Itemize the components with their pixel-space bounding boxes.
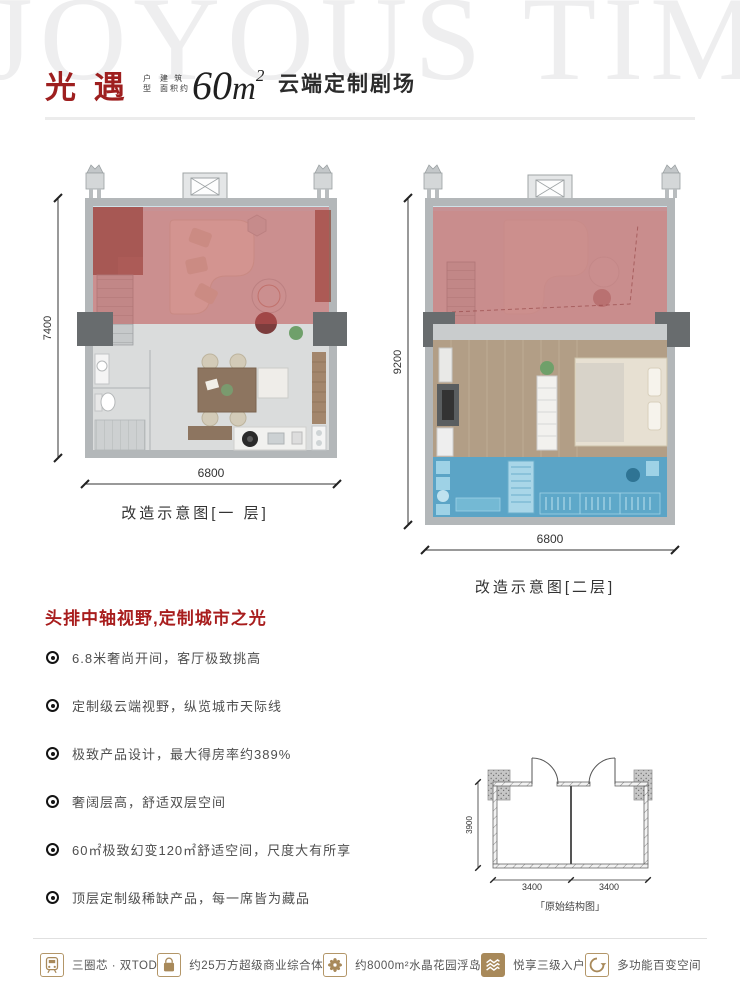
plan2-caption: 改造示意图[二层] [390,576,700,597]
svg-text:9200: 9200 [392,350,404,374]
features-heading: 头排中轴视野,定制城市之光 [45,604,267,629]
footer-item: 悦享三级入户 [481,953,585,977]
stairs-icon [481,953,505,977]
plant [289,326,303,340]
red-highlight-zone [433,207,667,324]
floor-plan-1-graphic: 7400 6800 [40,162,350,497]
red-highlight-zone [93,207,329,324]
poster-page: JOYOUS TIME 光 遇 户 型 建 筑 面积约 60m2 云端定制剧场 [0,0,740,1006]
dimension-line-width: 6800 [81,466,341,488]
tall-cabinet [312,352,326,450]
footer: 三圈芯 · 双TOD 约25万方超级商业综合体 [40,950,700,980]
bag-icon [157,953,181,977]
list-item: 奢阔层高，舒适双层空间 [46,792,351,811]
list-item: 60㎡极致幻变120㎡舒适空间，尺度大有所享 [46,840,351,859]
footer-item: 约25万方超级商业综合体 [157,953,323,977]
footer-item: 约8000m²水晶花园浮岛 [323,953,481,977]
features-list: 6.8米奢尚开间，客厅极致挑高 定制级云端视野，纵览城市天际线 极致产品设计，最… [46,648,351,936]
footer-label: 三圈芯 · 双TOD [72,957,157,973]
footer-label: 悦享三级入户 [513,957,585,973]
svg-text:6800: 6800 [198,466,225,480]
bullet-icon [46,843,59,856]
header-divider [45,117,695,120]
svg-text:3400: 3400 [599,882,619,892]
flower-icon [323,953,347,977]
dimension-line-height: 3900 [465,779,481,871]
dimension-line-width: 3400 3400 [490,877,651,892]
bullet-icon [46,891,59,904]
structure-walls [493,782,648,868]
dimension-line-height: 9200 [392,194,412,529]
list-item: 顶层定制级稀缺产品，每一席皆为藏品 [46,888,351,907]
bullet-icon [46,795,59,808]
footer-divider [33,938,707,939]
bullet-icon [46,699,59,712]
kitchen-island [258,368,288,398]
door-swing [532,758,615,784]
floor-plan-2-graphic: 9200 6800 [390,162,700,562]
page-title: 光 遇 [45,62,130,107]
train-icon [40,953,64,977]
type-label: 户 型 [143,74,153,94]
header-subtitle: 云端定制剧场 [278,68,416,98]
bullet-icon [46,747,59,760]
loop-icon [585,953,609,977]
bed [575,358,667,446]
elevator-shaft [528,175,572,202]
footer-label: 约25万方超级商业综合体 [189,957,323,973]
area-value: 60m2 [192,54,264,111]
footer-item: 多功能百变空间 [585,953,701,977]
list-item: 定制级云端视野，纵览城市天际线 [46,696,351,715]
footer-label: 约8000m²水晶花园浮岛 [355,957,481,973]
footer-item: 三圈芯 · 双TOD [40,953,157,977]
svg-text:7400: 7400 [42,316,54,340]
area-label: 建 筑 面积约 [160,74,190,94]
original-structure-diagram: 3900 3400 3400 「原始结构图」 [460,742,700,917]
svg-text:3900: 3900 [465,816,474,834]
footer-label: 多功能百变空间 [617,957,701,973]
dimension-line-width: 6800 [421,532,679,554]
header-labels: 户 型 建 筑 面积约 [143,74,190,94]
dimension-line-height: 7400 [42,194,62,462]
list-item: 6.8米奢尚开间，客厅极致挑高 [46,648,351,667]
elevator-shaft [183,173,227,200]
list-item: 极致产品设计，最大得房率约389% [46,744,351,763]
structure-caption: 「原始结构图」 [535,900,605,913]
plan1-caption: 改造示意图[一 层] [40,502,350,523]
ledge-strip [433,324,667,340]
svg-text:6800: 6800 [537,532,564,546]
bullet-icon [46,651,59,664]
svg-text:3400: 3400 [522,882,542,892]
